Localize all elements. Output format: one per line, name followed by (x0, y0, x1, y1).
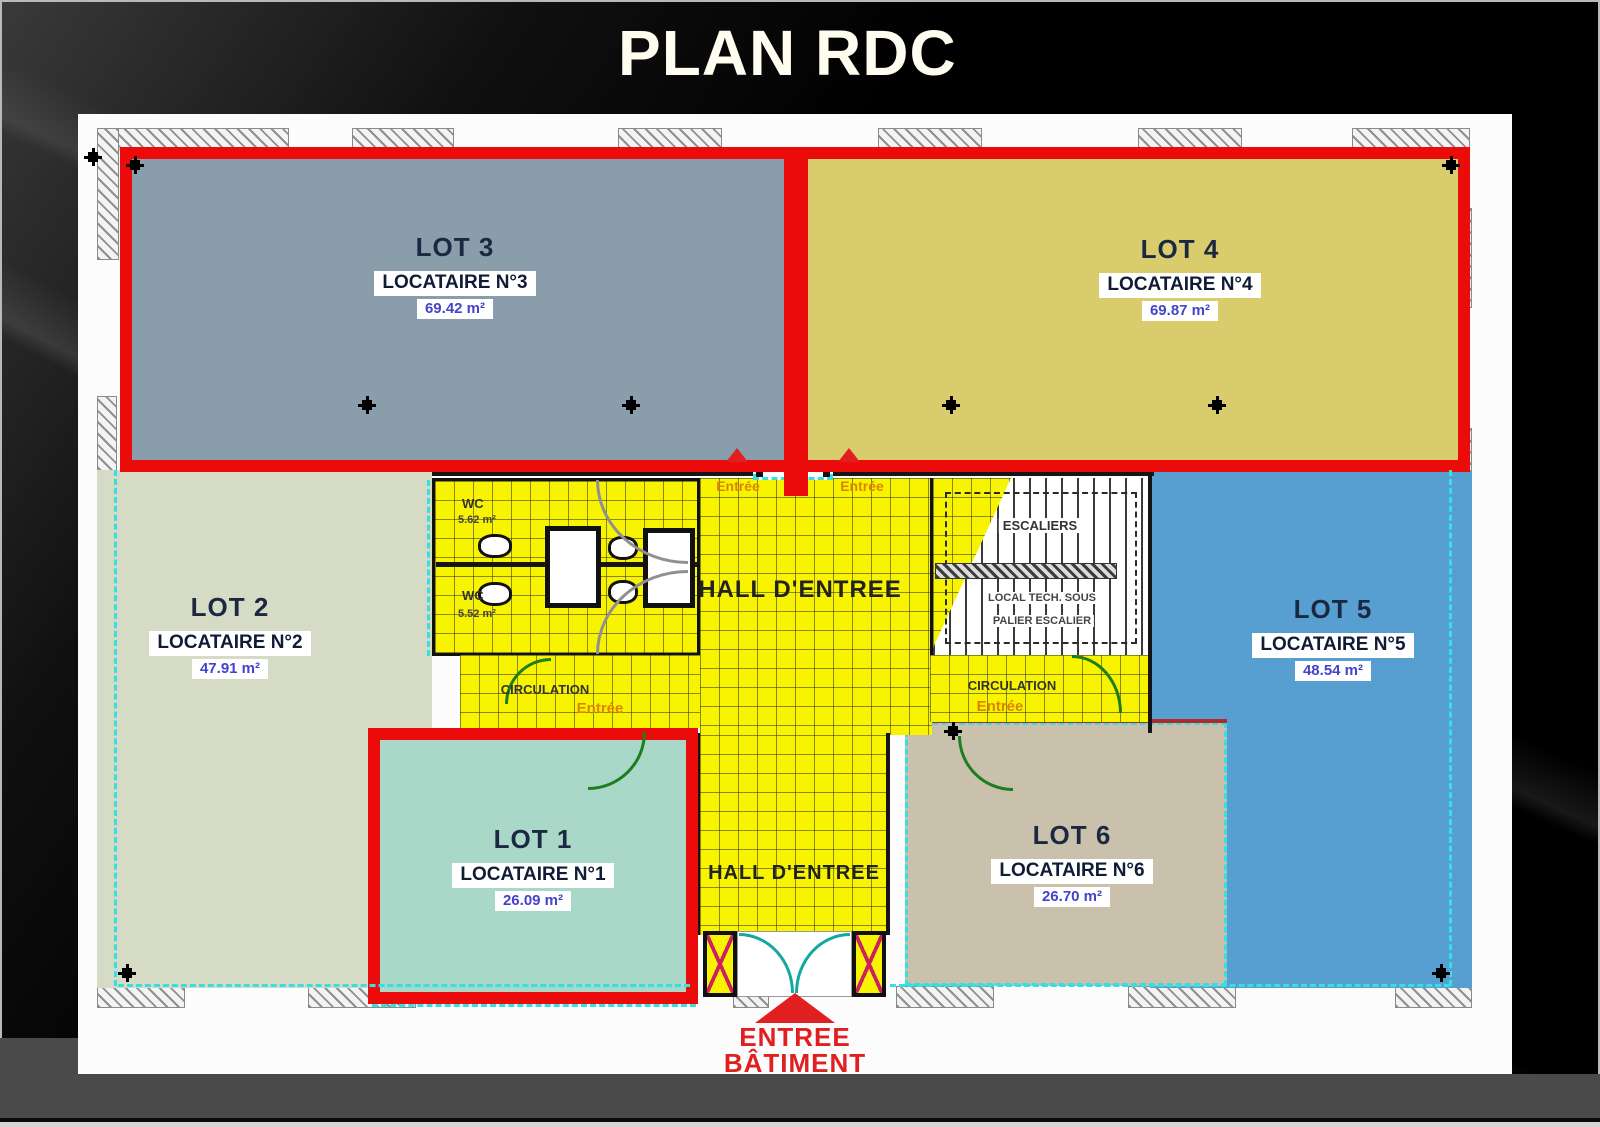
entree-circulation-right-label: Entrée (977, 698, 1024, 715)
lot1-name: LOT 1 (373, 824, 693, 855)
property-line (427, 480, 430, 656)
property-line (372, 1004, 696, 1007)
wc-bottom-label: WC (462, 588, 484, 603)
red-divider-extension (784, 470, 808, 496)
entrance-sidelight-right (852, 931, 886, 997)
lot4-tenant: LOCATAIRE N°4 (1099, 273, 1260, 298)
footer-left-patch (0, 1038, 78, 1078)
wc-top-label: WC (462, 496, 484, 511)
wall-line (886, 733, 890, 935)
lot1-area: 26.09 m² (495, 891, 571, 911)
column-mark (1208, 396, 1226, 414)
lot3-area: 69.42 m² (417, 299, 493, 319)
lot3-label: LOT 3 LOCATAIRE N°3 69.42 m² (295, 232, 615, 319)
entree-circulation-left-label: Entrée (577, 700, 624, 717)
property-line (890, 984, 1450, 987)
lot2-name: LOT 2 (70, 592, 390, 623)
stairs-label: ESCALIERS (999, 518, 1081, 533)
wall-hatch (1128, 986, 1236, 1008)
circulation-right-label: CIRCULATION (968, 678, 1057, 693)
lot2-area: 47.91 m² (192, 659, 268, 679)
column-mark (1442, 156, 1460, 174)
page-title: PLAN RDC (618, 16, 957, 90)
lot5-label: LOT 5 LOCATAIRE N°5 48.54 m² (1173, 594, 1493, 681)
column-mark (942, 396, 960, 414)
footer-bar (0, 1074, 1600, 1118)
column-mark (622, 396, 640, 414)
wc-bottom-area: 5.52 m² (458, 608, 496, 620)
lot3-name: LOT 3 (295, 232, 615, 263)
hall-entrance-label-bottom: HALL D'ENTREE (708, 862, 880, 885)
property-line (114, 470, 117, 986)
column-mark (84, 148, 102, 166)
column-mark (126, 156, 144, 174)
stairs-landing (935, 563, 1117, 579)
lot3-tenant: LOCATAIRE N°3 (374, 271, 535, 296)
footer-light-strip (0, 1122, 1600, 1127)
local-tech-label-line2: PALIER ESCALIER (990, 615, 1094, 627)
wall-hatch (97, 986, 185, 1008)
lot6-tenant: LOCATAIRE N°6 (991, 859, 1152, 884)
lot6-label: LOT 6 LOCATAIRE N°6 26.70 m² (912, 820, 1232, 907)
lot5-tenant: LOCATAIRE N°5 (1252, 633, 1413, 658)
lot5-name: LOT 5 (1173, 594, 1493, 625)
hall-entrance-label-top: HALL D'ENTREE (698, 576, 902, 604)
lot6-area: 26.70 m² (1034, 887, 1110, 907)
hall-entrance-corridor (700, 735, 888, 935)
wall-hatch (1395, 986, 1472, 1008)
lot2-label: LOT 2 LOCATAIRE N°2 47.91 m² (70, 592, 390, 679)
column-mark (358, 396, 376, 414)
lot1-tenant: LOCATAIRE N°1 (452, 863, 613, 888)
lot4-label: LOT 4 LOCATAIRE N°4 69.87 m² (1020, 234, 1340, 321)
lot4-area: 69.87 m² (1142, 301, 1218, 321)
toilet-fixture (478, 534, 512, 558)
entrance-sidelight-left (703, 931, 737, 997)
property-line (118, 984, 690, 987)
circulation-left-label: CIRCULATION (501, 682, 590, 697)
entrance-arrow-small-right (838, 448, 860, 462)
wall-hatch (896, 986, 994, 1008)
property-line (1449, 470, 1452, 986)
column-mark (1432, 964, 1450, 982)
lot6-name: LOT 6 (912, 820, 1232, 851)
lot2-tenant: LOCATAIRE N°2 (149, 631, 310, 656)
column-mark (118, 964, 136, 982)
entree-top-left-label: Entrée (716, 478, 760, 494)
wall-line (1148, 476, 1152, 733)
slide-canvas: PLAN RDC ESCALIERS LOCAL TECH. SOUS PALI… (0, 0, 1600, 1127)
entree-top-right-label: Entrée (840, 478, 884, 494)
hall-entrance-upper (700, 478, 932, 735)
lot4-name: LOT 4 (1020, 234, 1340, 265)
local-tech-label-line1: LOCAL TECH. SOUS (985, 592, 1099, 604)
wc-top-area: 5.62 m² (458, 514, 496, 526)
wc-duct-frame (545, 526, 601, 608)
entrance-arrow-small-left (726, 448, 748, 462)
lot1-label: LOT 1 LOCATAIRE N°1 26.09 m² (373, 824, 693, 911)
building-entrance-arrow (755, 993, 835, 1023)
lot5-area: 48.54 m² (1295, 661, 1371, 681)
